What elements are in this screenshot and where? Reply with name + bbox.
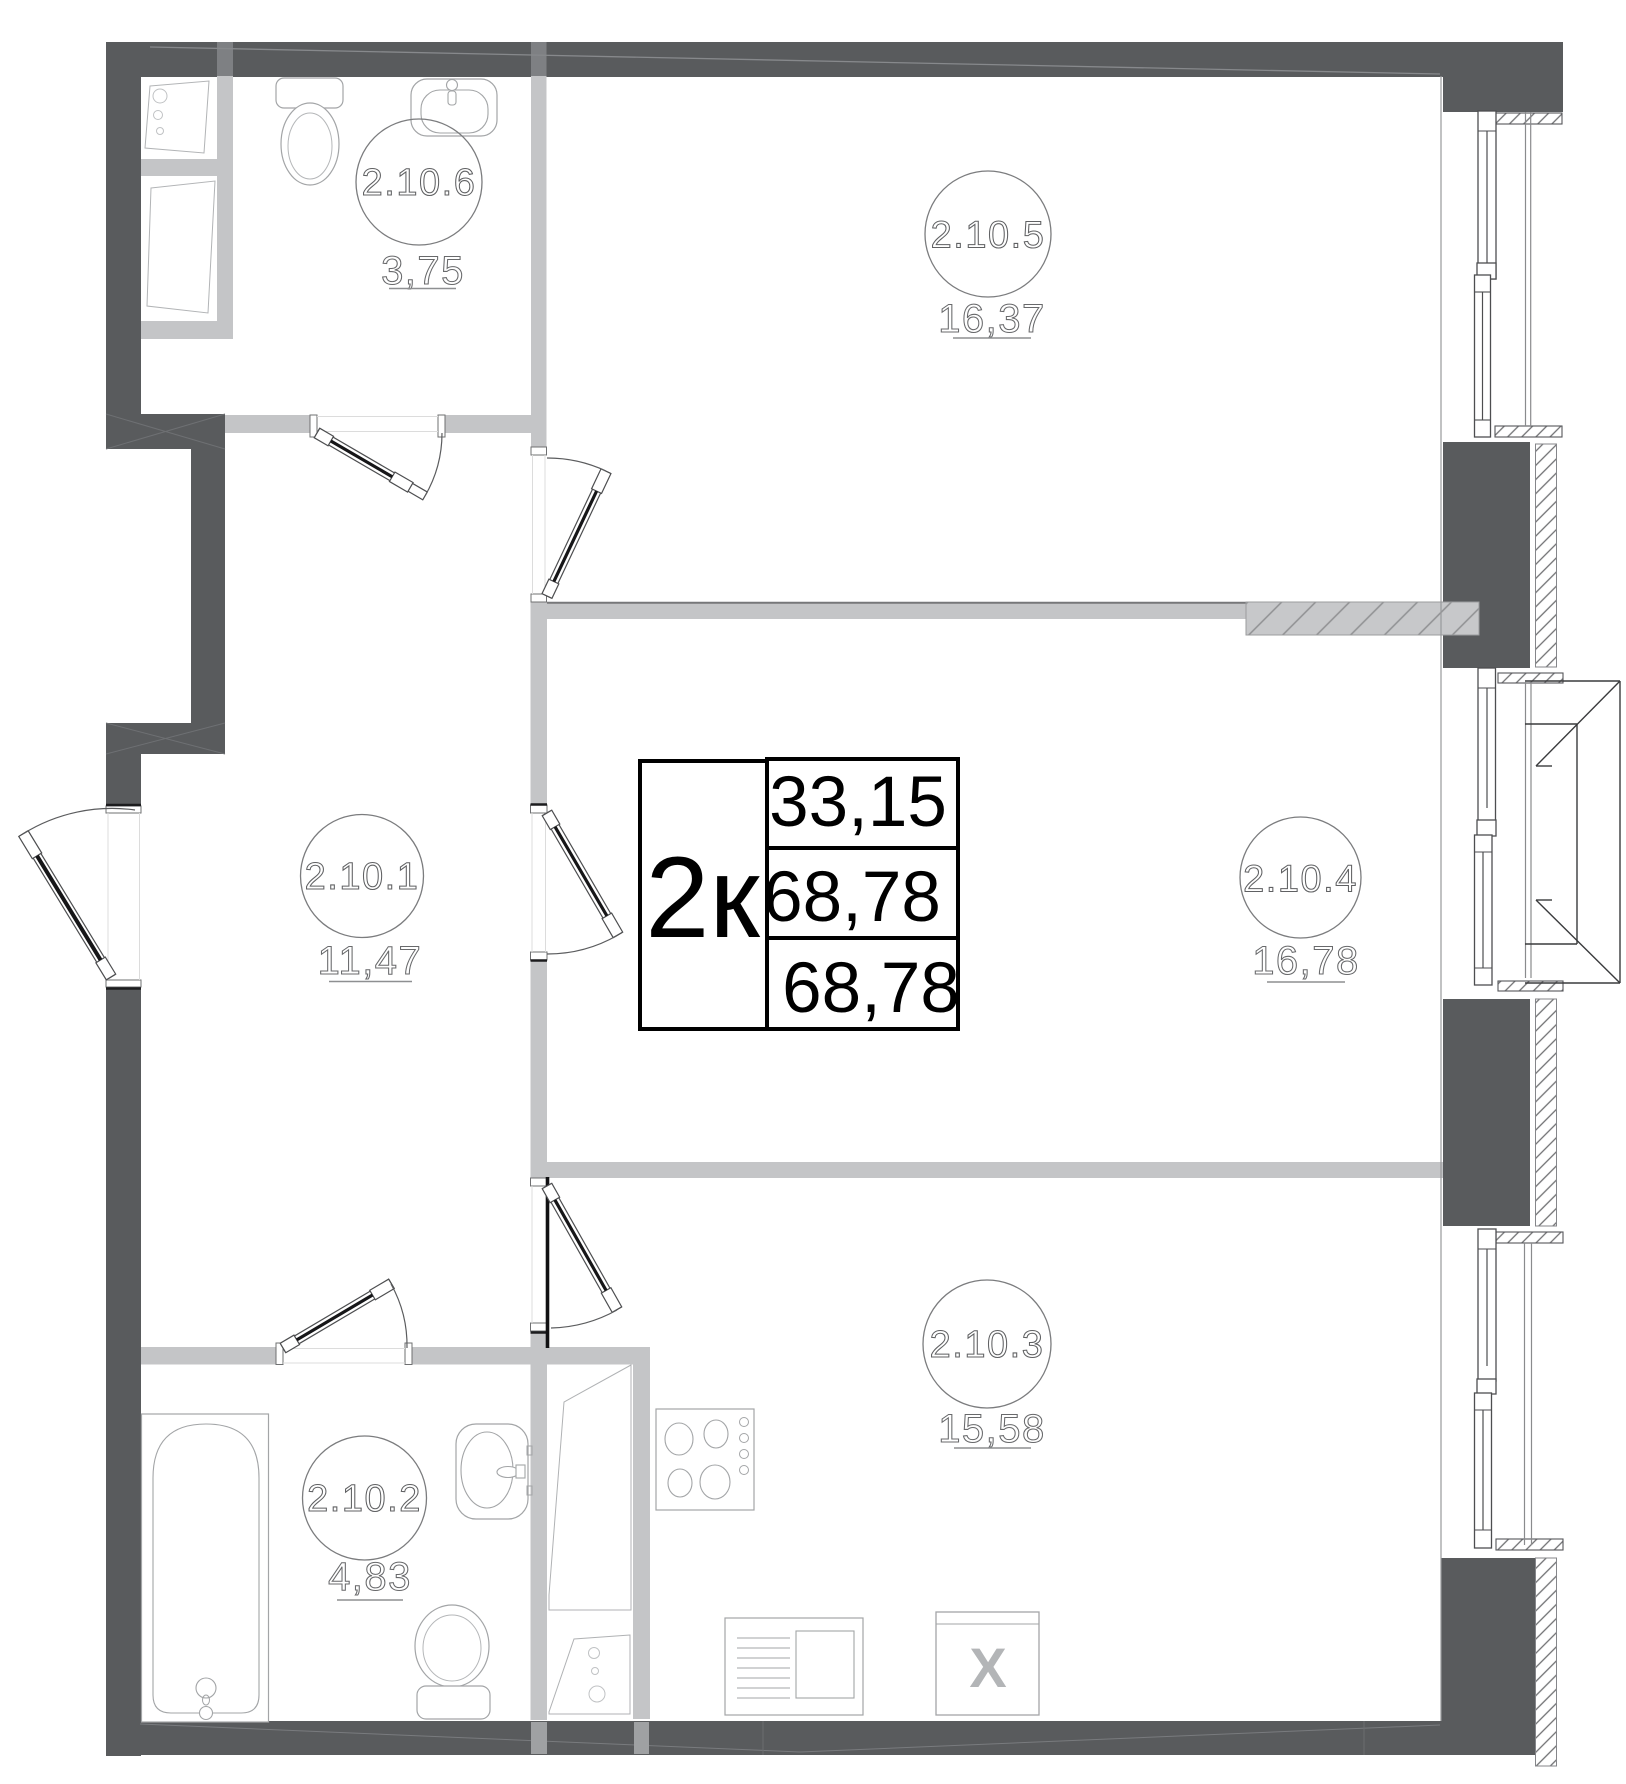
- svg-text:4,83: 4,83: [328, 1555, 412, 1599]
- svg-text:15,58: 15,58: [938, 1407, 1046, 1451]
- svg-text:68,78: 68,78: [763, 858, 941, 937]
- svg-text:2.10.3: 2.10.3: [930, 1324, 1045, 1366]
- svg-text:11,47: 11,47: [318, 939, 423, 983]
- svg-text:2.10.1: 2.10.1: [305, 856, 420, 898]
- svg-text:2к: 2к: [645, 834, 760, 962]
- svg-text:2.10.6: 2.10.6: [362, 162, 477, 204]
- svg-text:16,78: 16,78: [1252, 939, 1360, 983]
- svg-text:16,37: 16,37: [938, 297, 1046, 341]
- svg-text:2.10.5: 2.10.5: [931, 215, 1046, 257]
- svg-text:33,15: 33,15: [769, 763, 947, 842]
- svg-text:2.10.2: 2.10.2: [307, 1478, 422, 1520]
- svg-text:2.10.4: 2.10.4: [1243, 859, 1358, 901]
- svg-text:X: X: [969, 1636, 1006, 1699]
- svg-text:3,75: 3,75: [381, 249, 465, 293]
- svg-text:68,78: 68,78: [782, 949, 960, 1028]
